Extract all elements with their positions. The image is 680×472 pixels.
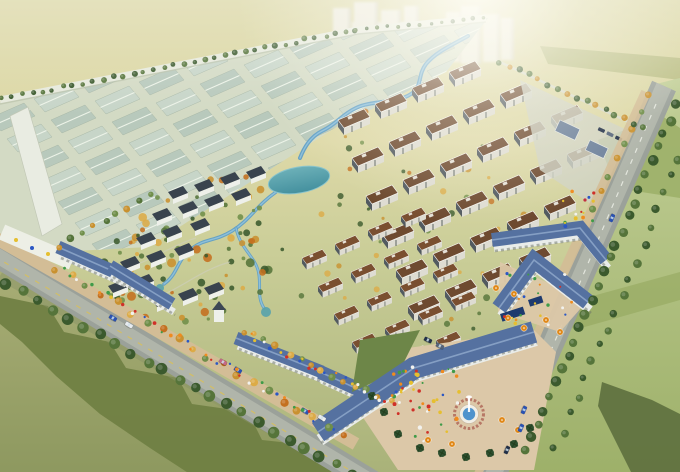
sun-haze-overlay xyxy=(0,0,680,472)
top-haze xyxy=(0,0,680,115)
aerial-rendering xyxy=(0,0,680,472)
scene-svg xyxy=(0,0,680,472)
